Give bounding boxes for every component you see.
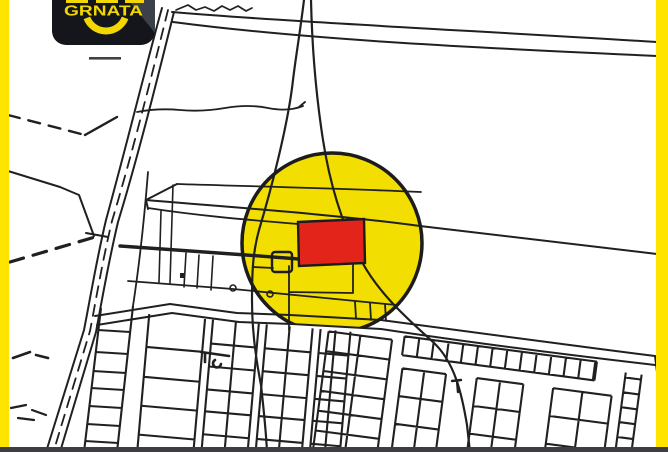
svg-text:GRNATA: GRNATA: [64, 3, 144, 19]
